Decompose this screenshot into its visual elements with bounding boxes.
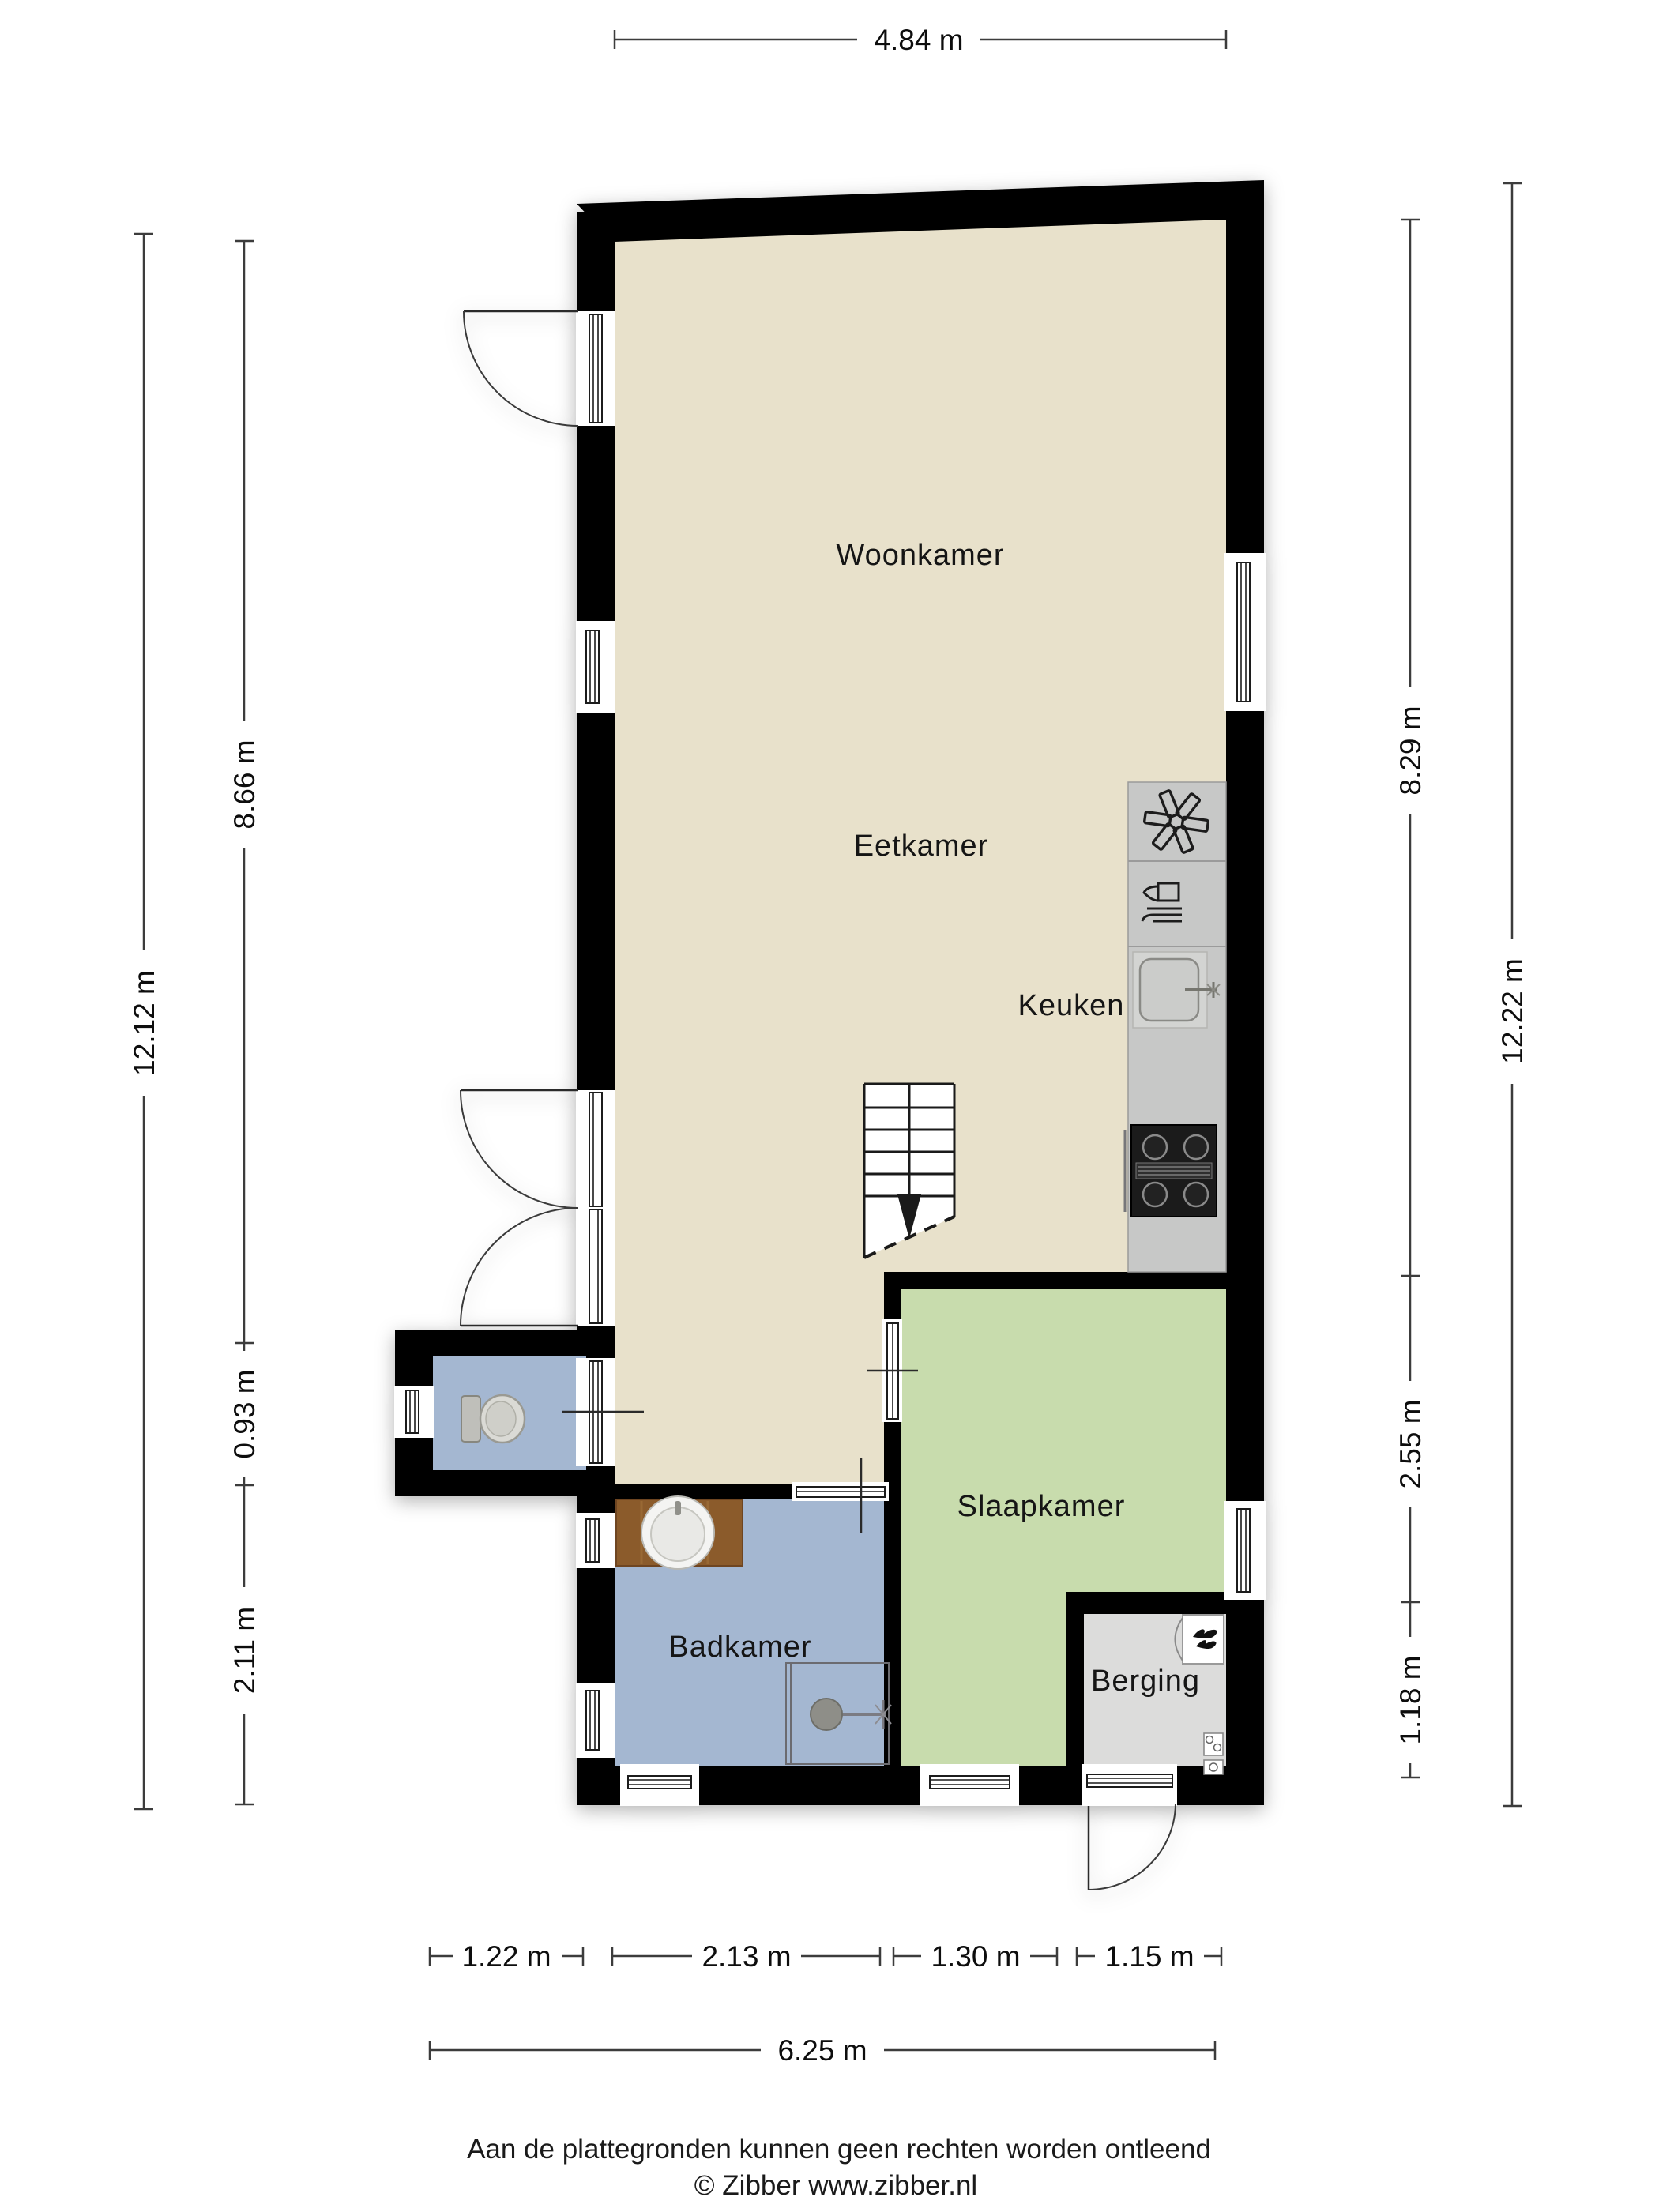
dim-top-label: 4.84 m	[874, 24, 963, 56]
double-door	[461, 1090, 615, 1326]
floorplan-canvas: Woonkamer Eetkamer Keuken Slaapkamer Bad…	[0, 0, 1659, 2212]
dim-right-lower-label: 1.18 m	[1394, 1655, 1427, 1744]
dim-bottom-seg3-label: 1.30 m	[931, 1940, 1020, 1973]
window	[920, 1764, 1019, 1806]
toilet-icon	[461, 1395, 525, 1443]
window	[394, 1386, 434, 1438]
berging-door	[1082, 1764, 1177, 1890]
wall-berging-top	[1066, 1592, 1226, 1614]
footer-copyright: © Zibber www.zibber.nl	[694, 2170, 977, 2201]
dim-left-total-label: 12.12 m	[128, 970, 160, 1076]
dim-left-lower-label: 2.11 m	[228, 1607, 261, 1694]
meter-icon	[1204, 1733, 1223, 1774]
dim-left-total: 12.12 m	[126, 234, 162, 1809]
entry-door	[464, 311, 615, 426]
dim-bottom-total: 6.25 m	[430, 2032, 1215, 2068]
dim-right-middle-label: 2.55 m	[1394, 1399, 1427, 1488]
dim-left-segments: 8.66 m 0.93 m 2.11 m	[226, 241, 262, 1804]
window	[620, 1764, 699, 1806]
floorplan-page: Woonkamer Eetkamer Keuken Slaapkamer Bad…	[0, 0, 1659, 2212]
dim-bottom-segments: 1.22 m 2.13 m 1.30 m 1.15 m	[430, 1938, 1221, 1973]
dim-left-upper-label: 8.66 m	[228, 739, 261, 829]
dim-right-segments: 8.29 m 2.55 m 1.18 m	[1392, 220, 1428, 1777]
dim-left-middle-label: 0.93 m	[228, 1369, 261, 1458]
window	[576, 1683, 615, 1758]
label-keuken: Keuken	[1018, 989, 1125, 1022]
wall-slaapkamer-top	[884, 1272, 1226, 1289]
stove-icon	[1125, 1125, 1217, 1217]
dim-bottom-seg2-label: 2.13 m	[702, 1940, 791, 1973]
label-berging: Berging	[1091, 1665, 1200, 1698]
washbasin-icon	[616, 1496, 743, 1569]
dim-right-total-label: 12.22 m	[1496, 958, 1529, 1064]
label-eetkamer: Eetkamer	[854, 829, 989, 863]
window	[576, 621, 615, 713]
dim-bottom-seg1-label: 1.22 m	[461, 1940, 551, 1973]
dim-bottom-seg4-label: 1.15 m	[1104, 1940, 1194, 1973]
dim-right-total: 12.22 m	[1494, 183, 1530, 1806]
dim-bottom-total-label: 6.25 m	[777, 2034, 867, 2067]
window	[1224, 553, 1266, 711]
wall-berging-left	[1066, 1592, 1084, 1766]
kitchen-sink-icon	[1133, 952, 1220, 1028]
label-badkamer: Badkamer	[668, 1631, 811, 1664]
boiler-flame-icon	[1176, 1615, 1224, 1664]
building: Woonkamer Eetkamer Keuken Slaapkamer Bad…	[394, 180, 1266, 1890]
kitchen-counter	[1125, 782, 1226, 1272]
window	[1224, 1501, 1266, 1600]
window	[576, 1513, 615, 1568]
label-slaapkamer: Slaapkamer	[957, 1490, 1126, 1523]
footer-disclaimer: Aan de plattegronden kunnen geen rechten…	[467, 2134, 1211, 2165]
dim-right-upper-label: 8.29 m	[1394, 705, 1427, 795]
label-woonkamer: Woonkamer	[836, 539, 1004, 572]
dim-top: 4.84 m	[615, 21, 1226, 58]
